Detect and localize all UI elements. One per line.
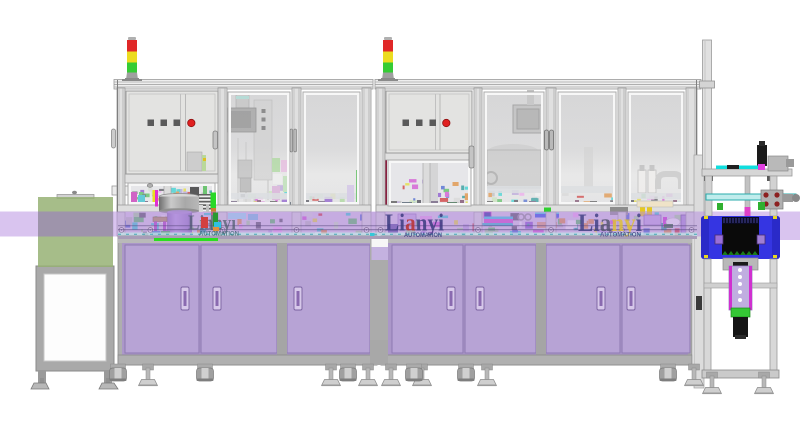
svg-text:AUTOMATION: AUTOMATION xyxy=(404,232,442,239)
svg-text:AUTOMATION: AUTOMATION xyxy=(600,232,642,239)
svg-text:AUTOMATION: AUTOMATION xyxy=(199,231,239,238)
